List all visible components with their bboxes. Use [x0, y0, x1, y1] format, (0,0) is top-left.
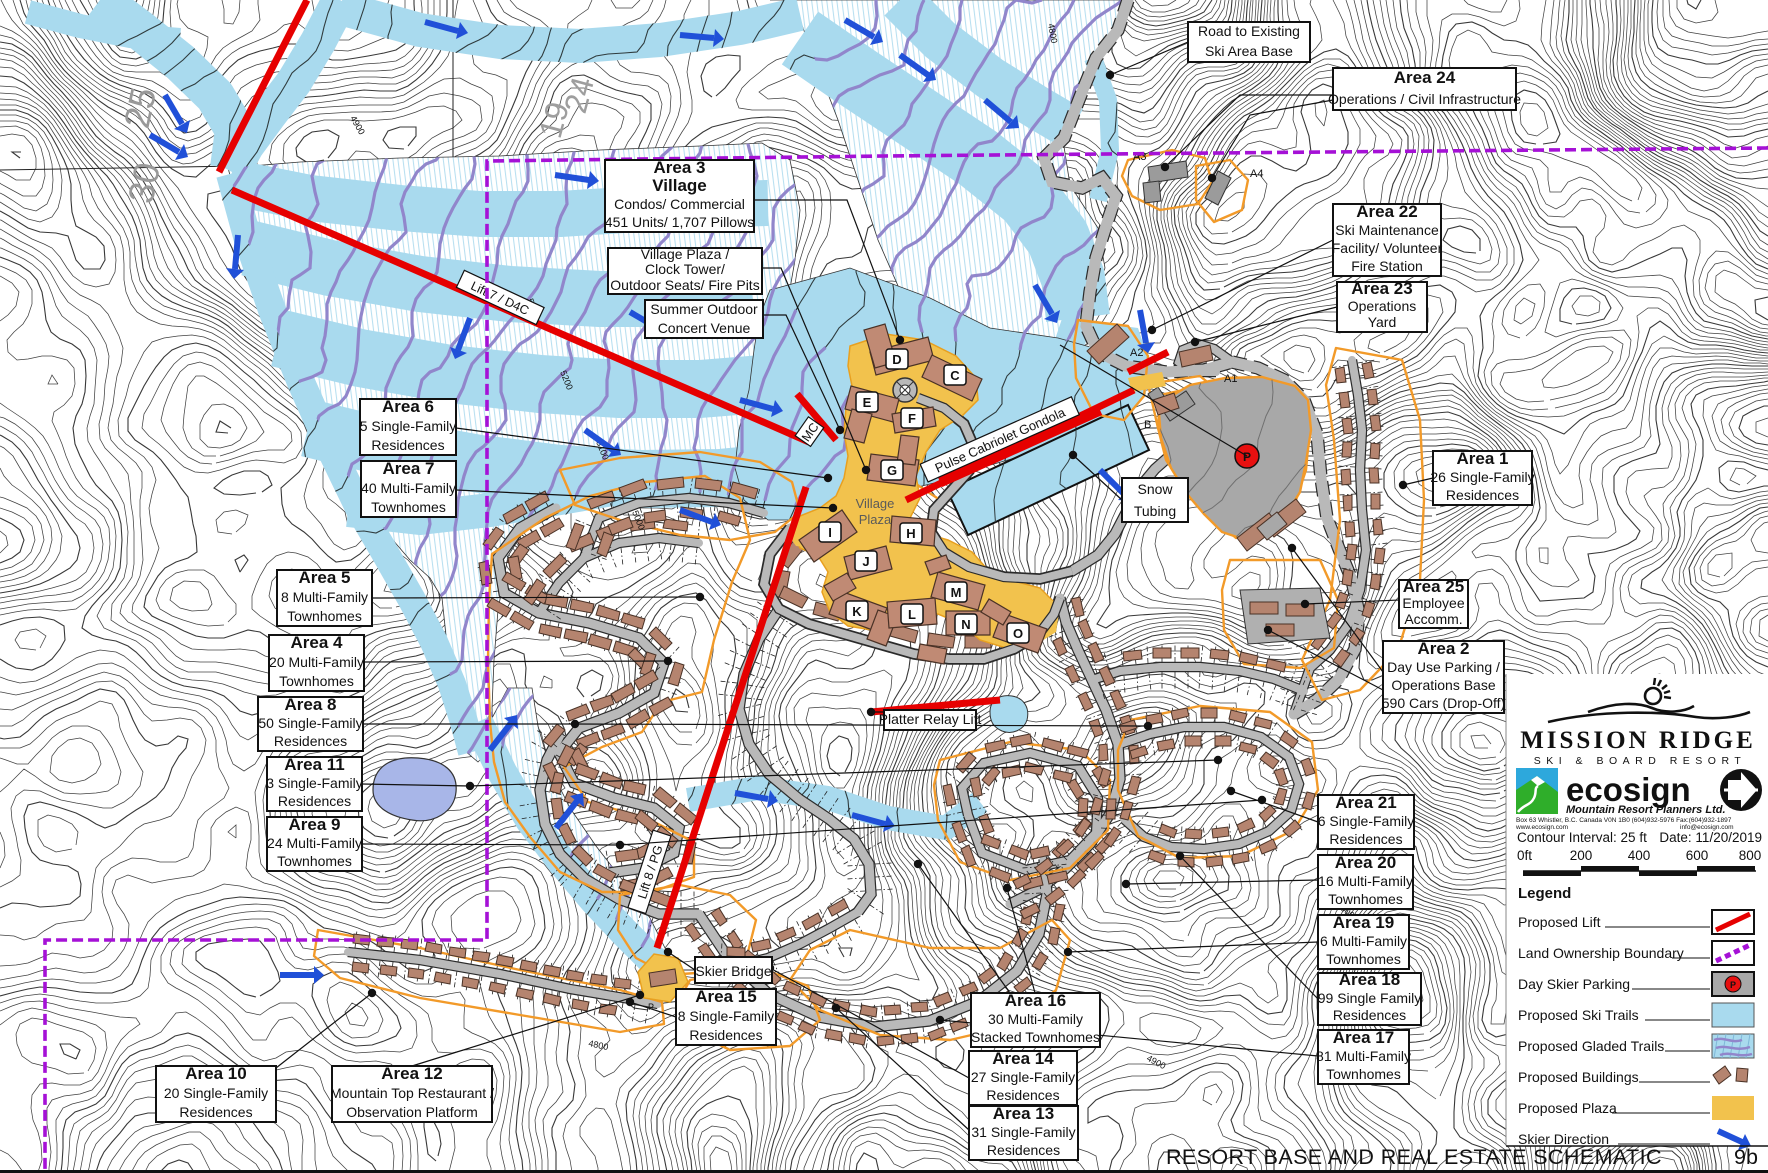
svg-text:Area 7: Area 7: [383, 459, 435, 478]
svg-text:25: 25: [116, 84, 164, 132]
svg-text:Area 19: Area 19: [1333, 913, 1394, 932]
svg-text:Proposed Ski Trails: Proposed Ski Trails: [1518, 1007, 1639, 1023]
svg-text:31 Single-Family: 31 Single-Family: [971, 1124, 1075, 1140]
svg-text:Area 3: Area 3: [654, 158, 706, 177]
svg-text:Area 2: Area 2: [1418, 639, 1470, 658]
svg-text:Townhomes: Townhomes: [279, 673, 354, 689]
svg-text:Skier Bridge: Skier Bridge: [695, 963, 771, 979]
svg-text:F: F: [908, 411, 916, 426]
svg-text:40 Multi-Family: 40 Multi-Family: [361, 480, 456, 496]
svg-text:Contour Interval: 25 ft: Contour Interval: 25 ft: [1517, 830, 1647, 845]
svg-text:G: G: [887, 463, 897, 478]
svg-text:Area 11: Area 11: [284, 755, 345, 774]
svg-text:24 Multi-Family: 24 Multi-Family: [267, 835, 362, 851]
svg-text:Accomm.: Accomm.: [1404, 611, 1462, 627]
svg-text:20 Multi-Family: 20 Multi-Family: [269, 654, 364, 670]
svg-text:6 Single-Family: 6 Single-Family: [1318, 813, 1414, 829]
svg-text:Operations Base: Operations Base: [1391, 677, 1495, 693]
svg-text:Proposed Gladed Trails: Proposed Gladed Trails: [1518, 1038, 1664, 1054]
svg-text:Outdoor Seats/ Fire Pits: Outdoor Seats/ Fire Pits: [610, 277, 759, 293]
svg-text:Day Skier Parking: Day Skier Parking: [1518, 976, 1630, 992]
svg-text:81 Multi-Family: 81 Multi-Family: [1316, 1048, 1411, 1064]
svg-text:50 Single-Family: 50 Single-Family: [258, 715, 362, 731]
svg-text:MISSION RIDGE: MISSION RIDGE: [1520, 727, 1756, 754]
svg-text:Box 63 Whistler, B.C. Canada V: Box 63 Whistler, B.C. Canada V0N 1B0 (60…: [1516, 817, 1732, 824]
svg-text:K: K: [852, 604, 862, 619]
svg-text:Area 16: Area 16: [1005, 991, 1066, 1010]
svg-text:30: 30: [120, 159, 168, 207]
svg-text:Day Use Parking /: Day Use Parking /: [1387, 659, 1500, 675]
svg-text:A2: A2: [1130, 347, 1143, 359]
svg-text:Village: Village: [856, 496, 895, 511]
svg-text:SKI & BOARD RESORT: SKI & BOARD RESORT: [1534, 755, 1747, 767]
svg-text:Ski Area Base: Ski Area Base: [1205, 43, 1293, 59]
svg-text:Residences: Residences: [986, 1087, 1059, 1103]
svg-text:Area 18: Area 18: [1339, 970, 1400, 989]
svg-text:Area 17: Area 17: [1333, 1028, 1394, 1047]
svg-text:Residences: Residences: [371, 437, 444, 453]
svg-text:Residences: Residences: [1333, 1007, 1406, 1023]
svg-text:Facility/ Volunteer: Facility/ Volunteer: [1332, 240, 1443, 256]
svg-text:Employee: Employee: [1402, 595, 1464, 611]
svg-text:99 Single Family: 99 Single Family: [1318, 990, 1422, 1006]
svg-text:Area 24: Area 24: [1394, 68, 1456, 87]
svg-text:C: C: [950, 368, 960, 383]
svg-text:Residences: Residences: [689, 1027, 762, 1043]
svg-text:P: P: [1243, 450, 1251, 464]
svg-text:J: J: [862, 554, 869, 569]
svg-text:16 Multi-Family: 16 Multi-Family: [1318, 873, 1413, 889]
svg-text:E: E: [863, 395, 872, 410]
svg-text:Townhomes: Townhomes: [287, 608, 362, 624]
svg-text:590 Cars (Drop-Off): 590 Cars (Drop-Off): [1382, 695, 1505, 711]
svg-text:Area 23: Area 23: [1351, 279, 1412, 298]
svg-text:27 Single-Family: 27 Single-Family: [971, 1069, 1075, 1085]
svg-text:Operations / Civil Infrastruct: Operations / Civil Infrastructure: [1328, 91, 1521, 107]
svg-text:A4: A4: [1250, 168, 1263, 180]
svg-text:Village: Village: [652, 176, 707, 195]
svg-text:451 Units/ 1,707 Pillows: 451 Units/ 1,707 Pillows: [605, 214, 754, 230]
svg-text:ecosign: ecosign: [1566, 771, 1691, 808]
svg-text:Area 15: Area 15: [695, 987, 756, 1006]
svg-text:Area 4: Area 4: [291, 633, 344, 652]
svg-text:800: 800: [1739, 848, 1762, 863]
svg-text:Condos/ Commercial: Condos/ Commercial: [614, 196, 745, 212]
svg-text:26 Single-Family: 26 Single-Family: [1430, 469, 1534, 485]
svg-text:Area 9: Area 9: [289, 815, 341, 834]
svg-text:Land Ownership Boundary: Land Ownership Boundary: [1518, 945, 1684, 961]
svg-text:8 Single-Family: 8 Single-Family: [678, 1008, 774, 1024]
svg-text:Stacked Townhomes: Stacked Townhomes: [971, 1029, 1100, 1045]
svg-text:I: I: [828, 525, 832, 540]
svg-text:Area 6: Area 6: [382, 397, 434, 416]
svg-text:Proposed Lift: Proposed Lift: [1518, 914, 1601, 930]
svg-text:20 Single-Family: 20 Single-Family: [164, 1085, 268, 1101]
svg-text:Area 12: Area 12: [381, 1064, 442, 1083]
svg-text:Road to Existing: Road to Existing: [1198, 23, 1300, 39]
svg-text:Residences: Residences: [1446, 487, 1519, 503]
svg-text:P: P: [648, 1002, 654, 1012]
svg-text:0ft: 0ft: [1517, 848, 1532, 863]
svg-text:Area 8: Area 8: [285, 695, 337, 714]
svg-text:Residences: Residences: [179, 1104, 252, 1120]
svg-text:Yard: Yard: [1368, 314, 1397, 330]
svg-text:Proposed Buildings: Proposed Buildings: [1518, 1069, 1639, 1085]
svg-text:O: O: [1013, 626, 1023, 641]
svg-text:Townhomes: Townhomes: [371, 499, 446, 515]
svg-text:Platter Relay Lift: Platter Relay Lift: [879, 711, 982, 727]
svg-text:Legend: Legend: [1518, 885, 1571, 902]
svg-text:Summer Outdoor: Summer Outdoor: [650, 301, 758, 317]
svg-text:Ski Maintenance: Ski Maintenance: [1335, 222, 1439, 238]
svg-text:Area 13: Area 13: [993, 1104, 1054, 1123]
svg-text:30 Multi-Family: 30 Multi-Family: [988, 1011, 1083, 1027]
svg-text:Mountain Top Restaurant /: Mountain Top Restaurant /: [330, 1085, 494, 1101]
svg-text:L: L: [908, 607, 916, 622]
svg-text:RESORT BASE AND REAL ESTATE SC: RESORT BASE AND REAL ESTATE SCHEMATIC: [1166, 1145, 1662, 1169]
svg-text:400: 400: [1628, 848, 1651, 863]
svg-text:Clock Tower/: Clock Tower/: [645, 261, 725, 277]
svg-text:Fire Station: Fire Station: [1351, 258, 1423, 274]
svg-text:Area 5: Area 5: [299, 568, 351, 587]
svg-text:Townhomes: Townhomes: [277, 853, 352, 869]
svg-text:Area 14: Area 14: [992, 1049, 1054, 1068]
svg-text:Observation Platform: Observation Platform: [346, 1104, 478, 1120]
svg-text:Snow: Snow: [1137, 481, 1173, 497]
svg-text:Townhomes: Townhomes: [1326, 1066, 1401, 1082]
svg-text:Concert Venue: Concert Venue: [658, 320, 751, 336]
svg-text:H: H: [906, 526, 915, 541]
svg-text:A1: A1: [1224, 373, 1237, 385]
svg-text:Date: 11/20/2019: Date: 11/20/2019: [1659, 830, 1762, 845]
svg-text:Area 21: Area 21: [1335, 793, 1396, 812]
svg-text:P: P: [1730, 980, 1736, 990]
svg-text:Area 1: Area 1: [1457, 449, 1509, 468]
svg-text:6 Multi-Family: 6 Multi-Family: [1320, 933, 1407, 949]
svg-text:Townhomes: Townhomes: [1326, 951, 1401, 967]
svg-text:Residences: Residences: [987, 1142, 1060, 1158]
svg-text:Residences: Residences: [274, 733, 347, 749]
svg-text:Residences: Residences: [1329, 831, 1402, 847]
svg-text:Townhomes: Townhomes: [1328, 891, 1403, 907]
svg-text:3 Single-Family: 3 Single-Family: [266, 775, 362, 791]
svg-text:Operations: Operations: [1348, 298, 1416, 314]
svg-text:Area 25: Area 25: [1403, 577, 1464, 596]
svg-text:Area 10: Area 10: [185, 1064, 246, 1083]
svg-text:Proposed Plaza: Proposed Plaza: [1518, 1100, 1617, 1116]
svg-text:Village Plaza /: Village Plaza /: [641, 246, 730, 262]
svg-text:5 Single-Family: 5 Single-Family: [360, 418, 456, 434]
svg-text:Mountain Resort Planners Ltd.: Mountain Resort Planners Ltd.: [1566, 804, 1726, 816]
svg-text:N: N: [961, 617, 970, 632]
svg-text:Area 20: Area 20: [1335, 853, 1396, 872]
svg-text:Tubing: Tubing: [1134, 503, 1176, 519]
svg-text:M: M: [951, 585, 962, 600]
svg-text:8 Multi-Family: 8 Multi-Family: [281, 589, 368, 605]
svg-text:Residences: Residences: [278, 793, 351, 809]
svg-text:Plaza: Plaza: [859, 512, 892, 527]
svg-text:9b: 9b: [1734, 1145, 1758, 1169]
svg-text:B: B: [1144, 419, 1151, 431]
svg-text:600: 600: [1686, 848, 1709, 863]
svg-text:Area 22: Area 22: [1356, 202, 1417, 221]
svg-text:D: D: [892, 352, 901, 367]
svg-text:200: 200: [1570, 848, 1593, 863]
